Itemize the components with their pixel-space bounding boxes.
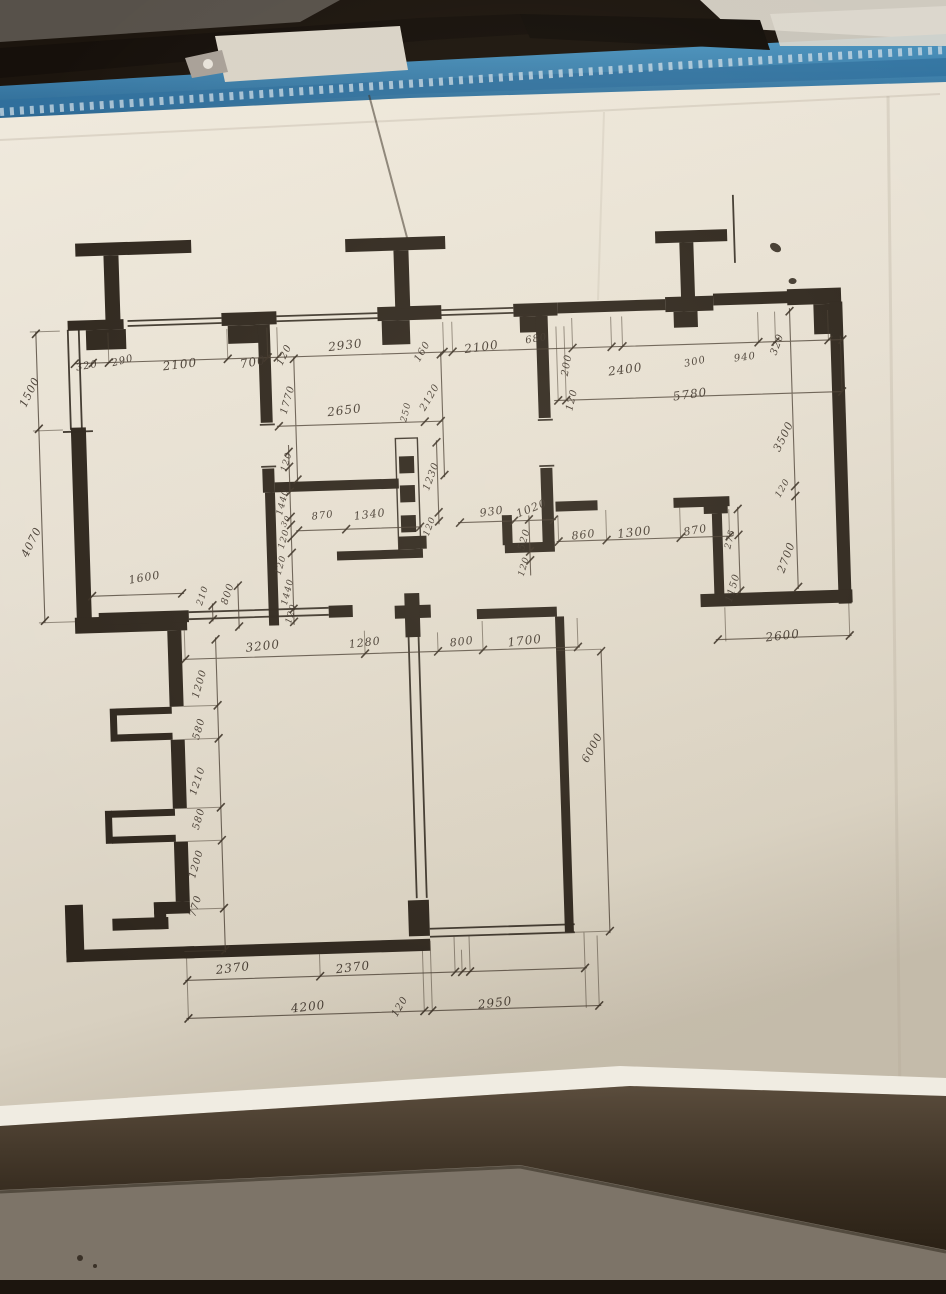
photo-scene: 3202902100700120293016021006802002400300… [0, 0, 946, 1280]
floor-plan-drawing: 3202902100700120293016021006802002400300… [0, 0, 946, 1294]
ink-smudge [768, 241, 782, 254]
ink-smudge [788, 278, 796, 284]
floor-plan-svg [0, 0, 946, 1294]
